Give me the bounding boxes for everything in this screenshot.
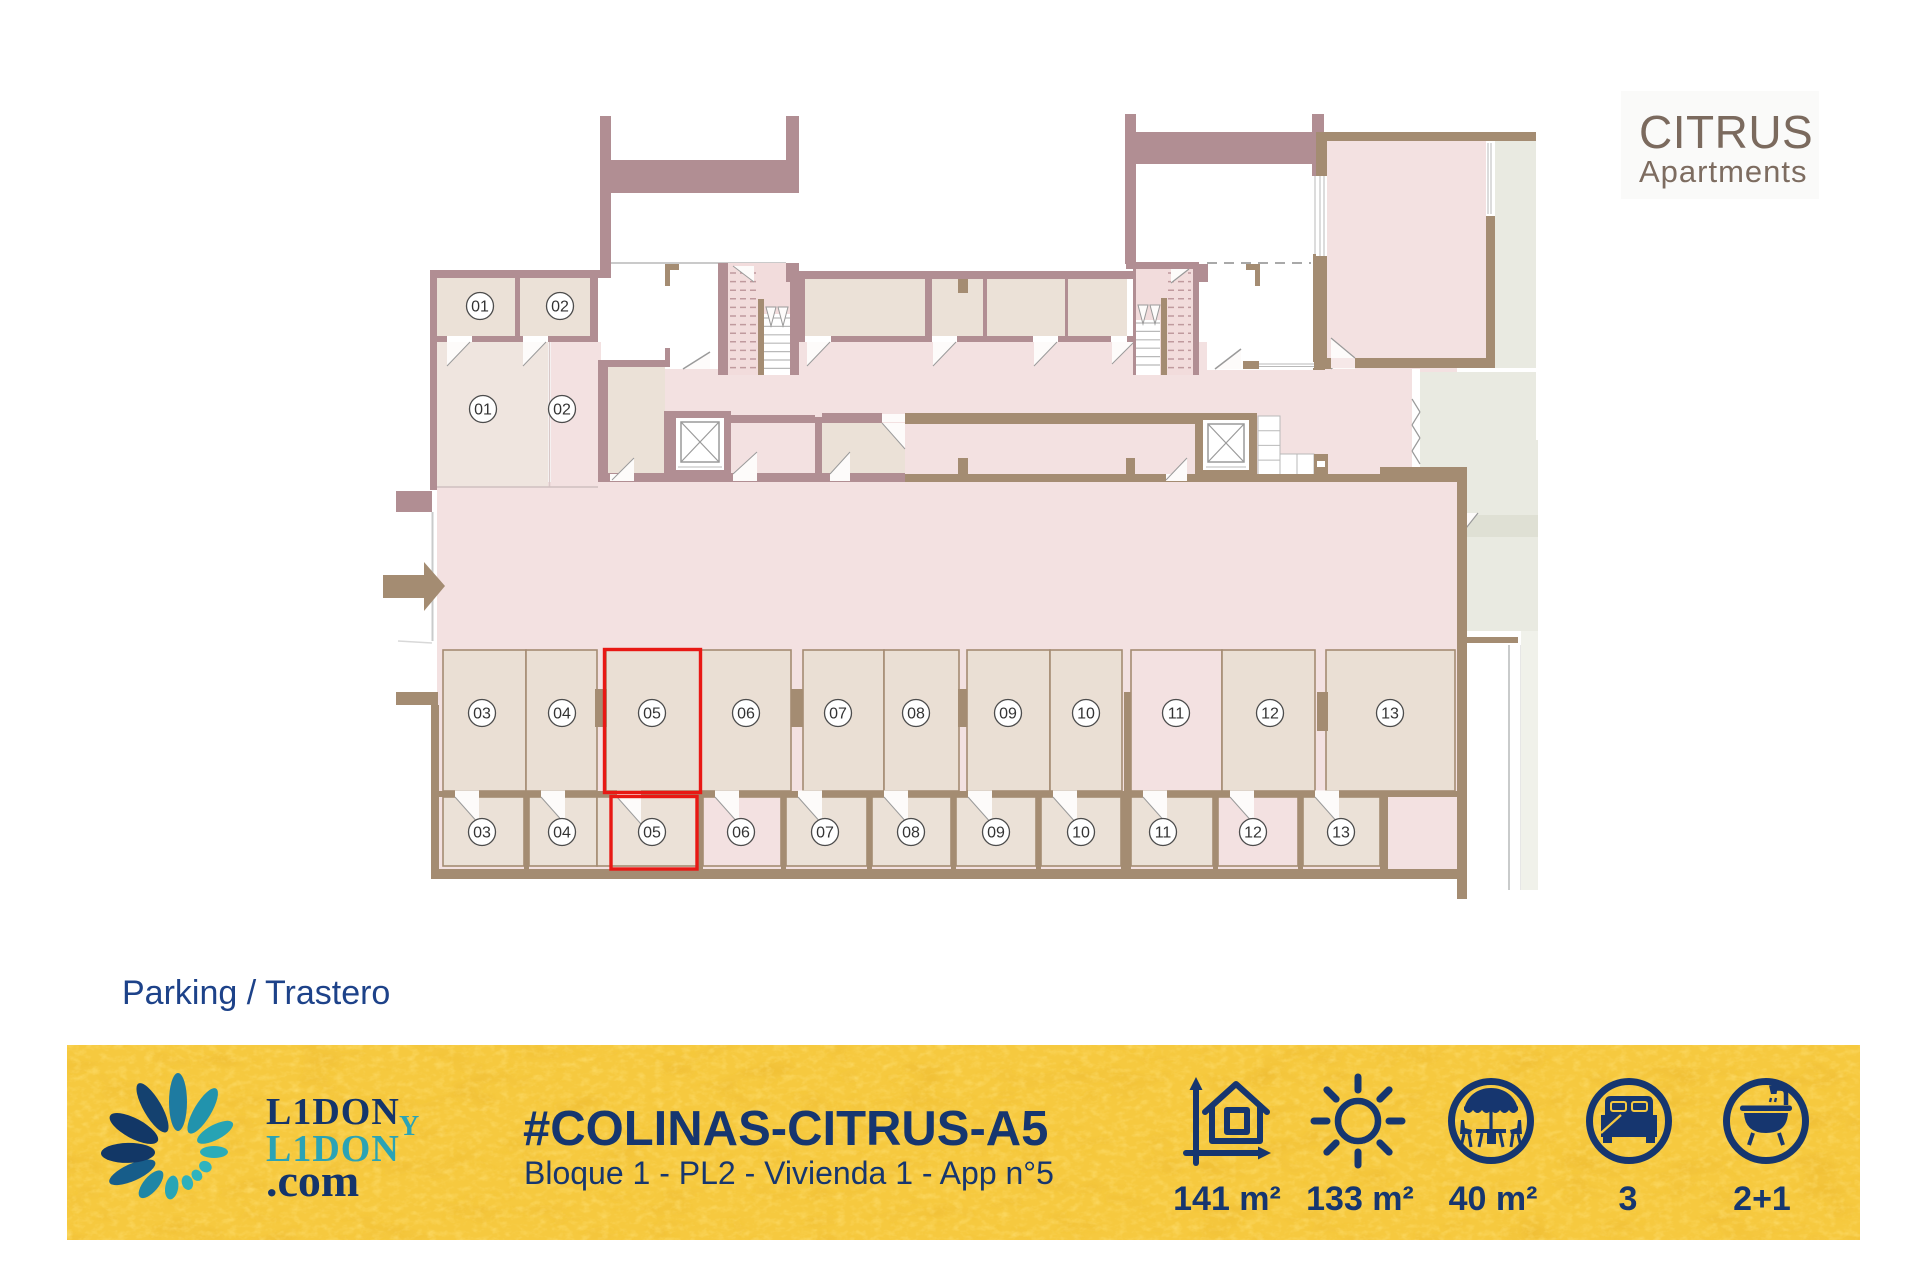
svg-text:03: 03 <box>473 706 491 723</box>
svg-text:04: 04 <box>553 706 571 723</box>
svg-text:05: 05 <box>643 825 661 842</box>
svg-text:12: 12 <box>1244 825 1262 842</box>
svg-text:06: 06 <box>737 706 755 723</box>
svg-text:02: 02 <box>551 299 569 316</box>
svg-text:11: 11 <box>1168 706 1185 723</box>
svg-text:06: 06 <box>732 825 750 842</box>
svg-text:11: 11 <box>1155 825 1172 842</box>
svg-text:3: 3 <box>1619 1180 1638 1218</box>
svg-text:01: 01 <box>471 299 489 316</box>
svg-text:01: 01 <box>474 402 492 419</box>
svg-text:08: 08 <box>907 706 925 723</box>
svg-text:L1DON: L1DON <box>266 1091 400 1133</box>
svg-text:07: 07 <box>816 825 834 842</box>
svg-text:Apartments: Apartments <box>1639 154 1808 189</box>
svg-text:10: 10 <box>1072 825 1090 842</box>
svg-text:Bloque 1 - PL2 - Vivienda 1 -: Bloque 1 - PL2 - Vivienda 1 - App n°5 <box>524 1155 1054 1191</box>
svg-text:05: 05 <box>643 706 661 723</box>
svg-text:CITRUS: CITRUS <box>1639 106 1813 158</box>
svg-text:02: 02 <box>553 402 571 419</box>
svg-text:13: 13 <box>1332 825 1350 842</box>
svg-text:Parking / Trastero: Parking / Trastero <box>122 974 390 1012</box>
svg-text:133 m²: 133 m² <box>1306 1180 1414 1218</box>
svg-text:04: 04 <box>553 825 571 842</box>
svg-text:.com: .com <box>266 1155 359 1206</box>
svg-text:07: 07 <box>829 706 847 723</box>
svg-text:12: 12 <box>1261 706 1279 723</box>
svg-text:09: 09 <box>999 706 1017 723</box>
svg-text:141 m²: 141 m² <box>1173 1180 1281 1218</box>
svg-text:10: 10 <box>1077 706 1095 723</box>
svg-text:2+1: 2+1 <box>1733 1180 1791 1218</box>
svg-text:09: 09 <box>987 825 1005 842</box>
svg-text:08: 08 <box>902 825 920 842</box>
svg-text:40 m²: 40 m² <box>1449 1180 1538 1218</box>
svg-text:Y: Y <box>399 1111 419 1142</box>
svg-text:03: 03 <box>473 825 491 842</box>
svg-text:13: 13 <box>1381 706 1399 723</box>
svg-text:#COLINAS-CITRUS-A5: #COLINAS-CITRUS-A5 <box>523 1102 1048 1156</box>
